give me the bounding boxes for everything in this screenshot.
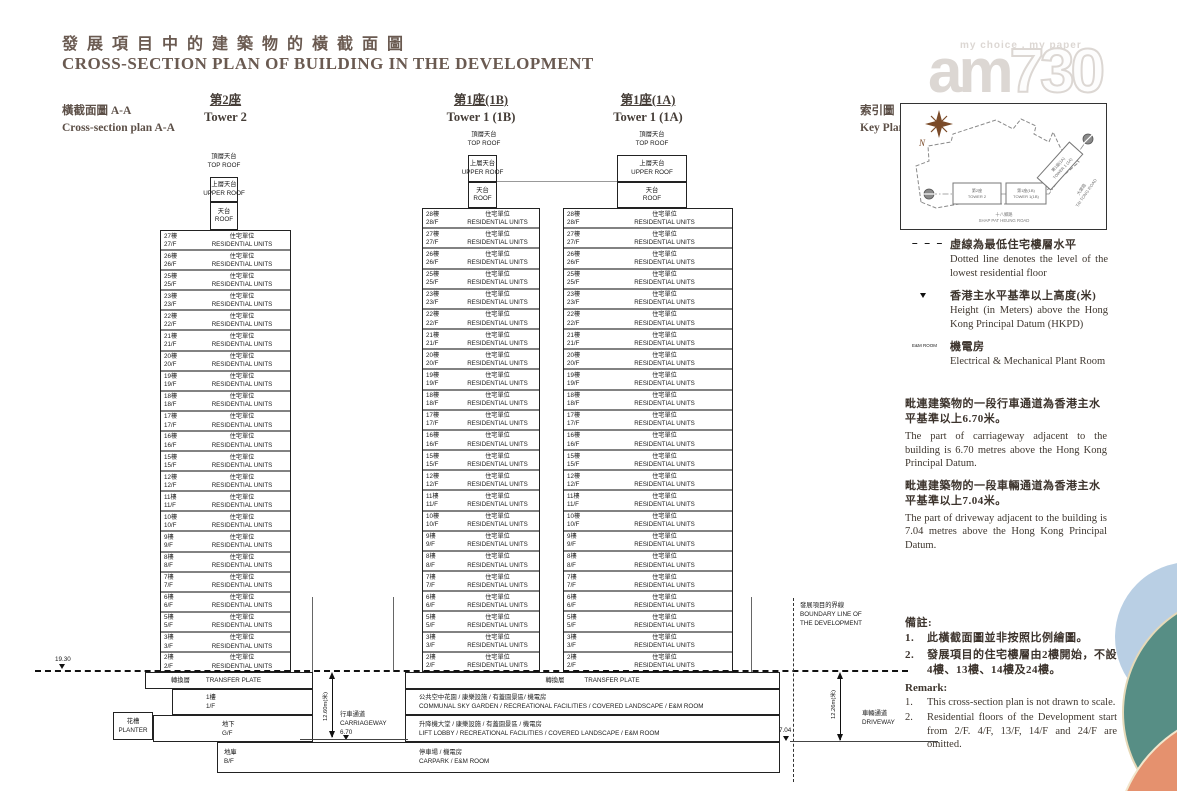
floor-use-label: 住宅單位RESIDENTIAL UNITS <box>456 310 539 328</box>
first-floor-zh: 1樓 <box>206 693 312 702</box>
legend-item-em-room: E&M ROOM 機電房 Electrical & Mechanical Pla… <box>912 340 1108 369</box>
remark-zh-1: 1. 此橫截面圖並非按照比例繪圖。 <box>905 631 1117 646</box>
floor-number: 18樓18/F <box>564 391 597 409</box>
floor-use-label: 住宅單位RESIDENTIAL UNITS <box>597 209 732 227</box>
floor-use-label: 住宅單位RESIDENTIAL UNITS <box>597 491 732 509</box>
floor-number: 10樓10/F <box>161 512 194 530</box>
tower1b-header: 第1座(1B) Tower 1 (1B) <box>422 92 540 126</box>
remark-number: 2. <box>905 648 927 678</box>
legend2-zh: 香港主水平基準以上高度(米) <box>950 289 1108 304</box>
floor-number: 11樓11/F <box>564 491 597 509</box>
floor-number: 8樓8/F <box>161 553 194 571</box>
floor-row: 5樓5/F住宅單位RESIDENTIAL UNITS <box>161 613 290 633</box>
floor-use-label: 住宅單位RESIDENTIAL UNITS <box>456 370 539 388</box>
floor-use-label: 住宅單位RESIDENTIAL UNITS <box>597 270 732 288</box>
floor-row: 8樓8/F住宅單位RESIDENTIAL UNITS <box>161 553 290 573</box>
dashed-line-symbol: – – – <box>912 238 950 280</box>
upper-roof-link-line <box>497 181 617 182</box>
floor-row: 27樓27/F住宅單位RESIDENTIAL UNITS <box>564 229 732 249</box>
floor-number: 9樓9/F <box>423 532 456 550</box>
floor-use-label: 住宅單位RESIDENTIAL UNITS <box>456 270 539 288</box>
floor-use-label: 住宅單位RESIDENTIAL UNITS <box>456 209 539 227</box>
floor-row: 27樓27/F住宅單位RESIDENTIAL UNITS <box>161 231 290 251</box>
key-plan-label-en: Key Plan <box>860 120 905 137</box>
floor-use-label: 住宅單位RESIDENTIAL UNITS <box>456 532 539 550</box>
floor-row: 12樓12/F住宅單位RESIDENTIAL UNITS <box>423 471 539 491</box>
tower2-top-roof-label: 頂層天台 TOP ROOF <box>186 153 262 170</box>
floor-number: 25樓25/F <box>423 270 456 288</box>
tower1b-roof-en: ROOF <box>473 195 491 204</box>
boundary-zh: 發展項目的界線 <box>800 602 862 611</box>
driveway-label: 車輛通道 DRIVEWAY <box>862 710 895 728</box>
floor-row: 18樓18/F住宅單位RESIDENTIAL UNITS <box>423 391 539 411</box>
floor-number: 22樓22/F <box>564 310 597 328</box>
tower1a-top-roof-label: 頂層天台 TOP ROOF <box>612 131 692 148</box>
floor-row: 16樓16/F住宅單位RESIDENTIAL UNITS <box>161 432 290 452</box>
floor-row: 5樓5/F住宅單位RESIDENTIAL UNITS <box>564 612 732 632</box>
floor-number: 21樓21/F <box>423 330 456 348</box>
floor-row: 27樓27/F住宅單位RESIDENTIAL UNITS <box>423 229 539 249</box>
podium-ground-floor: 升降機大堂 / 康樂設施 / 有蓋園景區 / 機電房 LIFT LOBBY / … <box>405 715 780 742</box>
tower2-roof-en: ROOF <box>215 216 233 225</box>
road2-label: 大棠路 TAI TONG ROAD <box>1069 174 1098 208</box>
tower1a-roof-box: 天台 ROOF <box>617 182 687 208</box>
tower1b-roof-zh: 天台 <box>476 187 489 196</box>
floor-row: 17樓17/F住宅單位RESIDENTIAL UNITS <box>423 411 539 431</box>
floor-row: 20樓20/F住宅單位RESIDENTIAL UNITS <box>161 352 290 372</box>
floor-row: 22樓22/F住宅單位RESIDENTIAL UNITS <box>161 311 290 331</box>
floor-use-label: 住宅單位RESIDENTIAL UNITS <box>597 431 732 449</box>
lift-lobby-en: LIFT LOBBY / RECREATIONAL FACILITIES / C… <box>419 729 779 738</box>
floor-use-label: 住宅單位RESIDENTIAL UNITS <box>597 633 732 651</box>
floor-number: 25樓25/F <box>161 271 194 289</box>
floor-use-label: 住宅單位RESIDENTIAL UNITS <box>194 452 290 470</box>
tower1a-upper-roof-en: UPPER ROOF <box>631 169 673 178</box>
floor-row: 18樓18/F住宅單位RESIDENTIAL UNITS <box>161 392 290 412</box>
gap-line-right <box>751 597 752 672</box>
key-plan-label-zh: 索引圖 <box>860 103 905 120</box>
floor-use-label: 住宅單位RESIDENTIAL UNITS <box>194 251 290 269</box>
remark-text: This cross-section plan is not drawn to … <box>927 696 1115 710</box>
floor-number: 19樓19/F <box>161 372 194 390</box>
floor-use-label: 住宅單位RESIDENTIAL UNITS <box>597 229 732 247</box>
floor-row: 23樓23/F住宅單位RESIDENTIAL UNITS <box>564 290 732 310</box>
building-tower1b-footprint: 第1座(1B) TOWER 1(1B) <box>1006 183 1046 204</box>
floor-number: 12樓12/F <box>423 471 456 489</box>
floor-number: 23樓23/F <box>564 290 597 308</box>
floor-number: 12樓12/F <box>161 472 194 490</box>
gap-line-mid <box>393 597 394 672</box>
floor-row: 9樓9/F住宅單位RESIDENTIAL UNITS <box>161 532 290 552</box>
dim-left-value: 12.60m(米) <box>320 692 329 721</box>
tower2-top-roof-zh: 頂層天台 <box>186 153 262 162</box>
floor-number: 15樓15/F <box>161 452 194 470</box>
tower1b-upper-roof-zh: 上層天台 <box>470 160 495 169</box>
floor-row: 20樓20/F住宅單位RESIDENTIAL UNITS <box>423 350 539 370</box>
legend1-zh: 虛線為最低住宅樓層水平 <box>950 238 1108 253</box>
floor-number: 11樓11/F <box>423 491 456 509</box>
floor-use-label: 住宅單位RESIDENTIAL UNITS <box>597 370 732 388</box>
floor-use-label: 住宅單位RESIDENTIAL UNITS <box>597 653 732 671</box>
height-marker-icon <box>920 293 926 298</box>
legend3-en: Electrical & Mechanical Plant Room <box>950 355 1108 369</box>
section-marker-left <box>923 189 935 199</box>
floor-number: 18樓18/F <box>161 392 194 410</box>
floor-number: 28樓28/F <box>564 209 597 227</box>
floor-use-label: 住宅單位RESIDENTIAL UNITS <box>597 310 732 328</box>
road1-zh: 十八鄉路 <box>995 211 1013 218</box>
floor-number: 26樓26/F <box>564 249 597 267</box>
floor-number: 15樓15/F <box>564 451 597 469</box>
floor-number: 10樓10/F <box>564 512 597 530</box>
boundary-en1: BOUNDARY LINE OF <box>800 611 862 620</box>
floor-use-label: 住宅單位RESIDENTIAL UNITS <box>194 331 290 349</box>
floor-row: 16樓16/F住宅單位RESIDENTIAL UNITS <box>423 431 539 451</box>
basement-label: 地庫 B/F <box>224 748 419 772</box>
floor-use-label: 住宅單位RESIDENTIAL UNITS <box>597 592 732 610</box>
floor-number: 2樓2/F <box>161 653 194 671</box>
floor-number: 26樓26/F <box>423 249 456 267</box>
tower1a-roof-zh: 天台 <box>646 187 659 196</box>
floor-use-label: 住宅單位RESIDENTIAL UNITS <box>597 391 732 409</box>
floor-number: 3樓3/F <box>423 633 456 651</box>
transfer-plate-en: TRANSFER PLATE <box>206 676 261 685</box>
lowest-residential-dashed-line <box>35 670 908 672</box>
floor-use-label: 住宅單位RESIDENTIAL UNITS <box>194 432 290 450</box>
floor-use-label: 住宅單位RESIDENTIAL UNITS <box>597 512 732 530</box>
tower2-roof-box: 天台 ROOF <box>210 202 238 230</box>
carriageway-zh: 行車通道 <box>340 711 387 720</box>
page-title-zh: 發展項目中的建築物的橫截面圖 <box>62 30 412 54</box>
floor-use-label: 住宅單位RESIDENTIAL UNITS <box>597 471 732 489</box>
floor-row: 21樓21/F住宅單位RESIDENTIAL UNITS <box>161 331 290 351</box>
floor-row: 10樓10/F住宅單位RESIDENTIAL UNITS <box>564 512 732 532</box>
remark-en-2: 2. Residential floors of the Development… <box>905 711 1117 752</box>
first-floor-en: 1/F <box>206 702 312 711</box>
tower1b-top-roof-zh: 頂層天台 <box>444 131 524 140</box>
dimension-line-left <box>332 676 333 737</box>
tower1a-top-roof-zh: 頂層天台 <box>612 131 692 140</box>
floor-use-label: 住宅單位RESIDENTIAL UNITS <box>194 392 290 410</box>
floor-number: 8樓8/F <box>423 552 456 570</box>
building-tower1a-footprint: 第1座(1A) TOWER 1 (1A) <box>1037 142 1082 190</box>
floor-row: 15樓15/F住宅單位RESIDENTIAL UNITS <box>423 451 539 471</box>
tower1a-top-roof-en: TOP ROOF <box>612 140 692 149</box>
floor-number: 5樓5/F <box>423 612 456 630</box>
floor-number: 22樓22/F <box>161 311 194 329</box>
dim-left-arrow-up <box>329 672 335 679</box>
floor-use-label: 住宅單位RESIDENTIAL UNITS <box>456 612 539 630</box>
floor-use-label: 住宅單位RESIDENTIAL UNITS <box>456 330 539 348</box>
boundary-en2: THE DEVELOPMENT <box>800 620 862 629</box>
floor-number: 19樓19/F <box>564 370 597 388</box>
remark-number: 2. <box>905 711 927 752</box>
floor-row: 3樓3/F住宅單位RESIDENTIAL UNITS <box>423 633 539 653</box>
remark-text: 此橫截面圖並非按照比例繪圖。 <box>927 631 1088 646</box>
basement-zh: 地庫 <box>224 748 419 757</box>
floor-row: 19樓19/F住宅單位RESIDENTIAL UNITS <box>161 372 290 392</box>
floor-use-label: 住宅單位RESIDENTIAL UNITS <box>456 411 539 429</box>
floor-use-label: 住宅單位RESIDENTIAL UNITS <box>194 653 290 671</box>
floor-row: 11樓11/F住宅單位RESIDENTIAL UNITS <box>161 492 290 512</box>
key-plan-label: 索引圖 Key Plan <box>860 103 905 137</box>
floor-row: 26樓26/F住宅單位RESIDENTIAL UNITS <box>423 249 539 269</box>
gap-line-left <box>312 597 313 672</box>
lowest-residential-marker <box>59 664 65 669</box>
floor-number: 27樓27/F <box>564 229 597 247</box>
tower1b-upper-roof-box: 上層天台 UPPER ROOF <box>468 155 497 182</box>
floor-use-label: 住宅單位RESIDENTIAL UNITS <box>456 290 539 308</box>
floor-number: 6樓6/F <box>564 592 597 610</box>
legend-item-height-marker: 香港主水平基準以上高度(米) Height (in Meters) above … <box>912 289 1108 331</box>
floor-use-label: 住宅單位RESIDENTIAL UNITS <box>597 290 732 308</box>
floor-use-label: 住宅單位RESIDENTIAL UNITS <box>456 451 539 469</box>
floor-row: 22樓22/F住宅單位RESIDENTIAL UNITS <box>423 310 539 330</box>
building-tower2-footprint: 第2座 TOWER 2 <box>953 183 1001 204</box>
tower1b-name-en: Tower 1 (1B) <box>422 109 540 126</box>
floor-number: 15樓15/F <box>423 451 456 469</box>
carpark-zh: 停車場 / 機電房 <box>419 748 489 757</box>
ground-floor-en: G/F <box>222 729 312 738</box>
floor-row: 8樓8/F住宅單位RESIDENTIAL UNITS <box>564 552 732 572</box>
floor-use-label: 住宅單位RESIDENTIAL UNITS <box>456 249 539 267</box>
sky-garden-en: COMMUNAL SKY GARDEN / RECREATIONAL FACIL… <box>419 702 779 711</box>
remarks-title-zh: 備註: <box>905 616 1117 631</box>
remark-number: 1. <box>905 696 927 710</box>
floor-row: 19樓19/F住宅單位RESIDENTIAL UNITS <box>564 370 732 390</box>
floor-use-label: 住宅單位RESIDENTIAL UNITS <box>456 391 539 409</box>
legend-item-dotted-line: – – – 虛線為最低住宅樓層水平 Dotted line denotes th… <box>912 238 1108 280</box>
floor-number: 16樓16/F <box>564 431 597 449</box>
floor-number: 12樓12/F <box>564 471 597 489</box>
floor-use-label: 住宅單位RESIDENTIAL UNITS <box>456 431 539 449</box>
floor-row: 6樓6/F住宅單位RESIDENTIAL UNITS <box>423 592 539 612</box>
transfer-plate-zh: 轉換層 <box>171 676 190 685</box>
section-label-zh: 橫截面圖 A-A <box>62 103 175 120</box>
floor-row: 22樓22/F住宅單位RESIDENTIAL UNITS <box>564 310 732 330</box>
floor-row: 26樓26/F住宅單位RESIDENTIAL UNITS <box>564 249 732 269</box>
floor-number: 16樓16/F <box>161 432 194 450</box>
floor-number: 21樓21/F <box>564 330 597 348</box>
remarks-title-en: Remark: <box>905 682 1117 696</box>
tower1a-name-zh: 第1座(1A) <box>563 92 733 109</box>
floor-number: 21樓21/F <box>161 331 194 349</box>
floor-row: 23樓23/F住宅單位RESIDENTIAL UNITS <box>161 291 290 311</box>
am730-logo-num: 730 <box>1010 37 1101 106</box>
dimension-line-right <box>840 676 841 740</box>
floor-use-label: 住宅單位RESIDENTIAL UNITS <box>194 311 290 329</box>
floor-row: 10樓10/F住宅單位RESIDENTIAL UNITS <box>161 512 290 532</box>
legend2-en: Height (in Meters) above the Hong Kong P… <box>950 304 1108 331</box>
section-label-en: Cross-section plan A-A <box>62 120 175 137</box>
floor-row: 11樓11/F住宅單位RESIDENTIAL UNITS <box>564 491 732 511</box>
carriageway-note-zh: 毗連建築物的一段行車通道為香港主水平基準以上6.70米。 <box>905 397 1107 427</box>
driveway-level-value: 7.04 <box>779 727 791 736</box>
tower2-name-zh: 第2座 <box>160 92 291 109</box>
carriageway-road-line <box>300 739 408 740</box>
floor-number: 23樓23/F <box>161 291 194 309</box>
floor-use-label: 住宅單位RESIDENTIAL UNITS <box>456 592 539 610</box>
floor-use-label: 住宅單位RESIDENTIAL UNITS <box>597 612 732 630</box>
basement-floor: 地庫 B/F 停車場 / 機電房 CARPARK / E&M ROOM <box>217 742 780 773</box>
driveway-level-marker <box>783 736 789 741</box>
remark-text: Residential floors of the Development st… <box>927 711 1117 752</box>
floor-use-label: 住宅單位RESIDENTIAL UNITS <box>597 532 732 550</box>
carpark-label: 停車場 / 機電房 CARPARK / E&M ROOM <box>419 748 489 772</box>
floor-use-label: 住宅單位RESIDENTIAL UNITS <box>194 271 290 289</box>
carriageway-label: 行車通道 CARRIAGEWAY 6.70 <box>340 711 387 737</box>
page-title-en: CROSS-SECTION PLAN OF BUILDING IN THE DE… <box>62 54 594 74</box>
basement-en: B/F <box>224 757 419 766</box>
floor-number: 5樓5/F <box>161 613 194 631</box>
floor-use-label: 住宅單位RESIDENTIAL UNITS <box>194 352 290 370</box>
floor-use-label: 住宅單位RESIDENTIAL UNITS <box>194 613 290 631</box>
floor-number: 3樓3/F <box>564 633 597 651</box>
planter-en: PLANTER <box>114 726 152 735</box>
floor-use-label: 住宅單位RESIDENTIAL UNITS <box>194 412 290 430</box>
floor-number: 7樓7/F <box>161 573 194 591</box>
floor-row: 18樓18/F住宅單位RESIDENTIAL UNITS <box>564 391 732 411</box>
legend1-en: Dotted line denotes the level of the low… <box>950 253 1108 280</box>
floor-row: 9樓9/F住宅單位RESIDENTIAL UNITS <box>564 532 732 552</box>
tower1a-roof-en: ROOF <box>643 195 661 204</box>
floor-number: 28樓28/F <box>423 209 456 227</box>
floor-number: 11樓11/F <box>161 492 194 510</box>
dim-left-arrow-down <box>329 731 335 738</box>
floor-use-label: 住宅單位RESIDENTIAL UNITS <box>597 249 732 267</box>
tower1b-floor-stack: 28樓28/F住宅單位RESIDENTIAL UNITS27樓27/F住宅單位R… <box>422 208 540 672</box>
am730-logo-am: am <box>928 37 1010 106</box>
lift-lobby-zh: 升降機大堂 / 康樂設施 / 有蓋園景區 / 機電房 <box>419 720 779 729</box>
floor-row: 7樓7/F住宅單位RESIDENTIAL UNITS <box>161 573 290 593</box>
driveway-note-en: The part of driveway adjacent to the bui… <box>905 512 1107 553</box>
floor-row: 23樓23/F住宅單位RESIDENTIAL UNITS <box>423 290 539 310</box>
floor-row: 6樓6/F住宅單位RESIDENTIAL UNITS <box>564 592 732 612</box>
tower2-upper-roof-en: UPPER ROOF <box>203 190 245 199</box>
floor-use-label: 住宅單位RESIDENTIAL UNITS <box>456 491 539 509</box>
floor-use-label: 住宅單位RESIDENTIAL UNITS <box>194 492 290 510</box>
compass-north-label: N <box>918 138 926 148</box>
dim-right-value: 12.26m(米) <box>828 690 837 719</box>
floor-row: 10樓10/F住宅單位RESIDENTIAL UNITS <box>423 512 539 532</box>
tower2-header: 第2座 Tower 2 <box>160 92 291 126</box>
tower1a-floor-stack: 28樓28/F住宅單位RESIDENTIAL UNITS27樓27/F住宅單位R… <box>563 208 733 672</box>
floor-number: 22樓22/F <box>423 310 456 328</box>
floor-number: 18樓18/F <box>423 391 456 409</box>
floor-number: 17樓17/F <box>423 411 456 429</box>
floor-use-label: 住宅單位RESIDENTIAL UNITS <box>456 572 539 590</box>
tower2-transfer-plate: 轉換層 TRANSFER PLATE <box>145 672 313 689</box>
podium-first-floor: 公共空中花園 / 康樂設施 / 有蓋園景區/ 機電房 COMMUNAL SKY … <box>405 689 780 715</box>
road1-en: SHAP PAT HEUNG ROAD <box>979 218 1030 223</box>
key-plan-svg: 第2座 TOWER 2 第1座(1B) TOWER 1(1B) 第1座(1A) … <box>901 104 1106 229</box>
floor-number: 9樓9/F <box>564 532 597 550</box>
key-plan: 第2座 TOWER 2 第1座(1B) TOWER 1(1B) 第1座(1A) … <box>900 103 1107 230</box>
floor-number: 20樓20/F <box>161 352 194 370</box>
floor-use-label: 住宅單位RESIDENTIAL UNITS <box>194 231 290 249</box>
tower2-floor-stack: 27樓27/F住宅單位RESIDENTIAL UNITS26樓26/F住宅單位R… <box>160 230 291 672</box>
floor-row: 16樓16/F住宅單位RESIDENTIAL UNITS <box>564 431 732 451</box>
tower1a-upper-roof-box: 上層天台 UPPER ROOF <box>617 155 687 182</box>
floor-number: 19樓19/F <box>423 370 456 388</box>
dim-right-arrow-up <box>837 672 843 679</box>
tower2-ground-floor: 地下 G/F <box>153 715 313 742</box>
tower1b-top-roof-en: TOP ROOF <box>444 140 524 149</box>
carpark-en: CARPARK / E&M ROOM <box>419 757 489 766</box>
floor-number: 10樓10/F <box>423 512 456 530</box>
floor-row: 26樓26/F住宅單位RESIDENTIAL UNITS <box>161 251 290 271</box>
floor-row: 2樓2/F住宅單位RESIDENTIAL UNITS <box>423 653 539 671</box>
main-transfer-plate: 轉換層 TRANSFER PLATE <box>405 672 780 689</box>
floor-use-label: 住宅單位RESIDENTIAL UNITS <box>194 472 290 490</box>
floor-row: 2樓2/F住宅單位RESIDENTIAL UNITS <box>564 653 732 671</box>
floor-use-label: 住宅單位RESIDENTIAL UNITS <box>456 512 539 530</box>
floor-number: 23樓23/F <box>423 290 456 308</box>
floor-number: 5樓5/F <box>564 612 597 630</box>
floor-use-label: 住宅單位RESIDENTIAL UNITS <box>597 330 732 348</box>
floor-use-label: 住宅單位RESIDENTIAL UNITS <box>194 532 290 550</box>
remark-number: 1. <box>905 631 927 646</box>
floor-row: 11樓11/F住宅單位RESIDENTIAL UNITS <box>423 491 539 511</box>
floor-row: 9樓9/F住宅單位RESIDENTIAL UNITS <box>423 532 539 552</box>
carriageway-note-en: The part of carriageway adjacent to the … <box>905 430 1107 471</box>
floor-row: 15樓15/F住宅單位RESIDENTIAL UNITS <box>161 452 290 472</box>
sky-garden-zh: 公共空中花園 / 康樂設施 / 有蓋園景區/ 機電房 <box>419 693 779 702</box>
floor-row: 21樓21/F住宅單位RESIDENTIAL UNITS <box>564 330 732 350</box>
tower1b-upper-roof-en: UPPER ROOF <box>462 169 504 178</box>
floor-use-label: 住宅單位RESIDENTIAL UNITS <box>456 471 539 489</box>
floor-use-label: 住宅單位RESIDENTIAL UNITS <box>456 350 539 368</box>
tower2-top-roof-en: TOP ROOF <box>186 162 262 171</box>
planter-box: 花槽 PLANTER <box>113 712 153 740</box>
floor-row: 3樓3/F住宅單位RESIDENTIAL UNITS <box>564 633 732 653</box>
floor-number: 8樓8/F <box>564 552 597 570</box>
floor-row: 15樓15/F住宅單位RESIDENTIAL UNITS <box>564 451 732 471</box>
tower2-upper-roof-zh: 上層天台 <box>211 181 236 190</box>
floor-row: 25樓25/F住宅單位RESIDENTIAL UNITS <box>564 270 732 290</box>
floor-use-label: 住宅單位RESIDENTIAL UNITS <box>456 229 539 247</box>
floor-use-label: 住宅單位RESIDENTIAL UNITS <box>194 593 290 611</box>
floor-use-label: 住宅單位RESIDENTIAL UNITS <box>597 572 732 590</box>
legend3-zh: 機電房 <box>950 340 1108 355</box>
svg-text:第1座(1B): 第1座(1B) <box>1017 187 1035 193</box>
tower1b-name-zh: 第1座(1B) <box>422 92 540 109</box>
floor-row: 19樓19/F住宅單位RESIDENTIAL UNITS <box>423 370 539 390</box>
floor-row: 6樓6/F住宅單位RESIDENTIAL UNITS <box>161 593 290 613</box>
remarks: 備註: 1. 此橫截面圖並非按照比例繪圖。 2. 發展項目的住宅樓層由2樓開始，… <box>905 616 1117 754</box>
floor-use-label: 住宅單位RESIDENTIAL UNITS <box>456 653 539 671</box>
tower1a-name-en: Tower 1 (1A) <box>563 109 733 126</box>
floor-use-label: 住宅單位RESIDENTIAL UNITS <box>597 552 732 570</box>
remark-en-1: 1. This cross-section plan is not drawn … <box>905 696 1117 710</box>
transfer-plate-en: TRANSFER PLATE <box>584 676 639 685</box>
floor-number: 25樓25/F <box>564 270 597 288</box>
floor-number: 20樓20/F <box>423 350 456 368</box>
tower1b-top-roof-label: 頂層天台 TOP ROOF <box>444 131 524 148</box>
floor-number: 27樓27/F <box>161 231 194 249</box>
cross-section-plan-page: my choice . my paper am730 發展項目中的建築物的橫截面… <box>0 0 1177 791</box>
svg-text:TOWER 1(1B): TOWER 1(1B) <box>1013 194 1039 199</box>
driveway-note-zh: 毗連建築物的一段車輛通道為香港主水平基準以上7.04米。 <box>905 479 1107 509</box>
floor-use-label: 住宅單位RESIDENTIAL UNITS <box>194 372 290 390</box>
em-room-symbol: E&M ROOM <box>912 343 950 369</box>
tower1b-roof-box: 天台 ROOF <box>468 182 497 208</box>
floor-number: 17樓17/F <box>161 412 194 430</box>
floor-number: 6樓6/F <box>423 592 456 610</box>
floor-row: 7樓7/F住宅單位RESIDENTIAL UNITS <box>423 572 539 592</box>
floor-number: 27樓27/F <box>423 229 456 247</box>
tower1a-upper-roof-zh: 上層天台 <box>639 160 664 169</box>
